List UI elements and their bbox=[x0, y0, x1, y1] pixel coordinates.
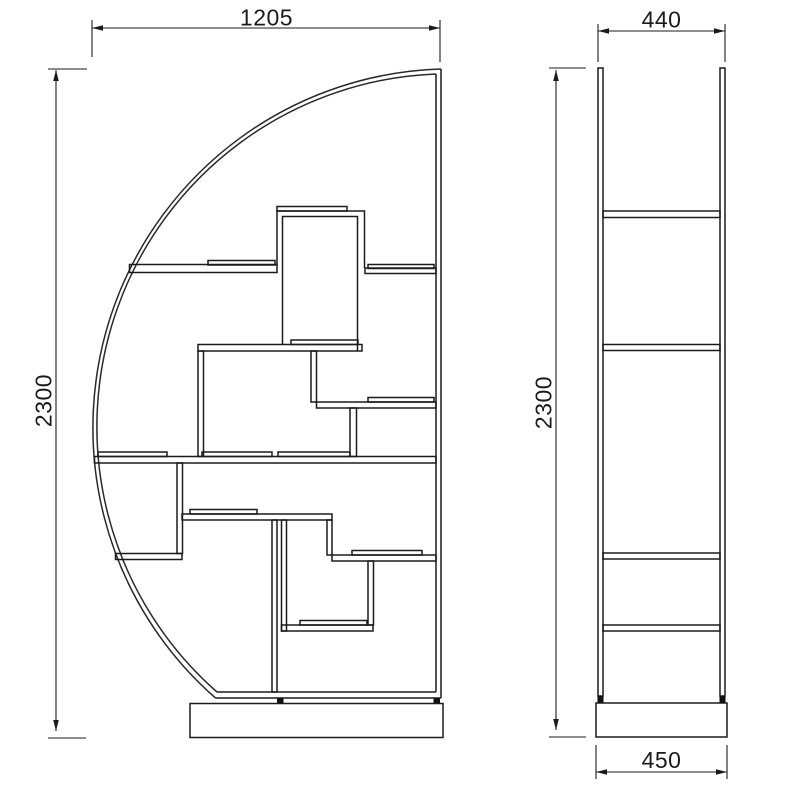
dimension-label: 2300 bbox=[531, 376, 557, 429]
side-foot-right bbox=[720, 696, 726, 703]
ledge bbox=[278, 452, 350, 457]
arrow-down-icon bbox=[53, 720, 59, 731]
dimension-label: 2300 bbox=[31, 374, 57, 427]
ledge bbox=[368, 398, 434, 403]
front-foot-right bbox=[434, 698, 441, 704]
ledge bbox=[277, 207, 347, 212]
shelf bbox=[95, 457, 437, 464]
shelf bbox=[182, 514, 332, 520]
dimension-front-width: 1205 bbox=[92, 5, 440, 63]
divider bbox=[327, 520, 332, 555]
divider bbox=[368, 561, 374, 625]
shelf bbox=[317, 402, 437, 408]
shelf bbox=[198, 345, 362, 352]
front-box-upper bbox=[277, 207, 365, 351]
arrow-up-icon bbox=[53, 70, 59, 81]
dimension-side-base-depth: 450 bbox=[596, 745, 727, 779]
dimension-front-height: 2300 bbox=[31, 69, 88, 738]
arrow-left-icon bbox=[596, 769, 607, 775]
shelf bbox=[332, 555, 436, 561]
ledge bbox=[300, 621, 367, 626]
side-foot-left bbox=[598, 696, 604, 703]
technical-drawing: 1205 2300 440 2300 450 bbox=[0, 0, 795, 803]
front-foot-left bbox=[277, 698, 284, 704]
arrow-right-icon bbox=[716, 769, 727, 775]
dimension-label: 1205 bbox=[240, 5, 293, 31]
ledge bbox=[208, 261, 275, 266]
arrow-right-icon bbox=[429, 25, 440, 31]
front-inner-arc bbox=[97, 74, 436, 692]
front-view bbox=[93, 69, 443, 738]
side-rail-left bbox=[598, 68, 603, 696]
ledge bbox=[352, 551, 422, 556]
arrow-down-icon bbox=[553, 719, 559, 730]
arrow-left-icon bbox=[92, 25, 103, 31]
front-base bbox=[190, 704, 443, 738]
arrow-right-icon bbox=[714, 28, 725, 34]
ledge bbox=[98, 452, 167, 457]
shelf bbox=[116, 554, 183, 560]
drawing-sheet: 1205 2300 440 2300 450 bbox=[0, 0, 795, 803]
side-view bbox=[596, 68, 727, 737]
dimension-side-height: 2300 bbox=[531, 68, 587, 737]
divider bbox=[350, 408, 357, 457]
arrow-left-icon bbox=[598, 28, 609, 34]
side-shelf bbox=[603, 211, 720, 218]
ledge bbox=[190, 510, 257, 515]
side-shelf bbox=[603, 625, 720, 631]
divider bbox=[198, 351, 204, 457]
divider bbox=[177, 463, 183, 554]
divider bbox=[272, 520, 277, 692]
side-shelf bbox=[603, 553, 720, 559]
divider bbox=[282, 520, 287, 631]
side-base bbox=[596, 703, 727, 737]
ledge bbox=[202, 452, 272, 457]
dimension-label: 450 bbox=[642, 747, 682, 773]
arrow-up-icon bbox=[553, 70, 559, 81]
side-rail-right bbox=[720, 68, 725, 696]
divider bbox=[311, 351, 317, 402]
ledge bbox=[368, 265, 434, 269]
shelf bbox=[282, 625, 374, 631]
side-shelf bbox=[603, 345, 720, 351]
dimension-label: 440 bbox=[642, 7, 682, 33]
dimension-side-depth: 440 bbox=[598, 7, 725, 63]
